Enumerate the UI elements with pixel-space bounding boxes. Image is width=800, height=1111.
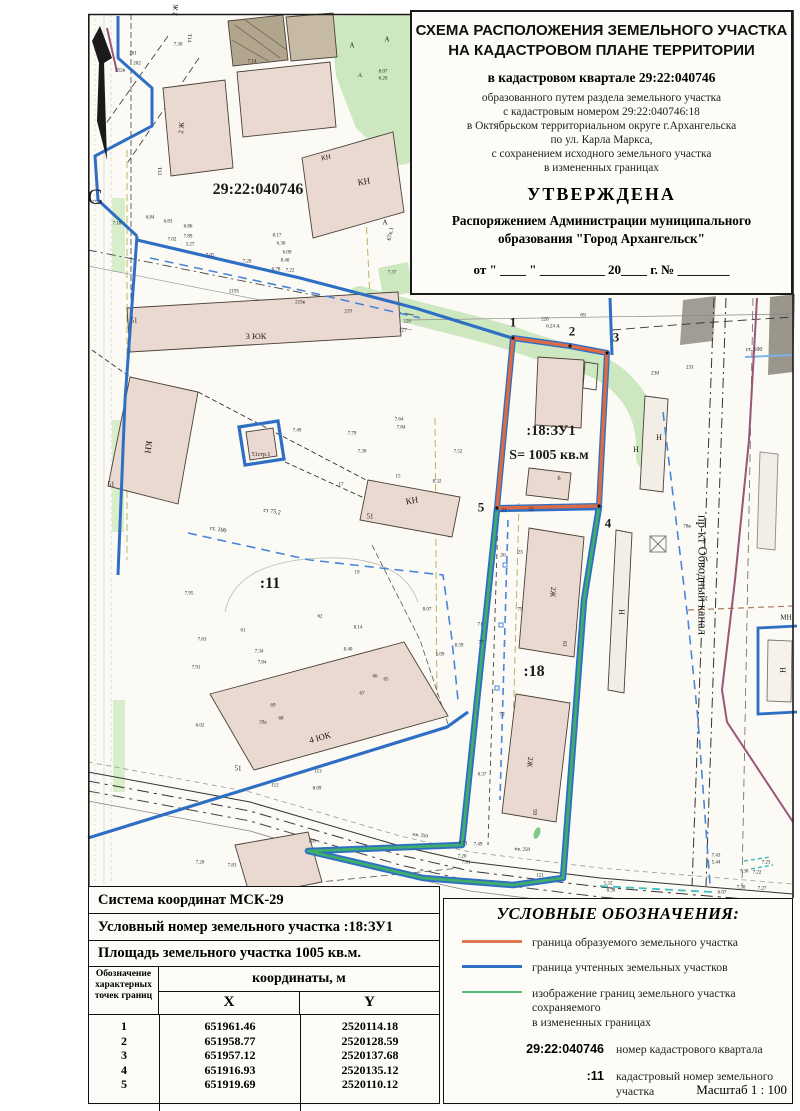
- point-number-cell: 4: [89, 1063, 159, 1078]
- coordinates-table-body: 12345 651961.46651958.77651957.12651916.…: [89, 1015, 439, 1111]
- approved-by: Распоряжением Администрации муниципально…: [412, 212, 791, 246]
- coordinates-table-header: Обозначение характерных точек границ коо…: [89, 967, 439, 1015]
- y-column-header: Y: [300, 992, 439, 1014]
- legend-item-label-line2: в измененных границах: [532, 1015, 786, 1029]
- y-coordinate-cell: 2520128.59: [301, 1034, 439, 1049]
- legend-item-label-line1: изображение границ земельного участка со…: [532, 986, 786, 1015]
- point-number-cell: 5: [89, 1077, 159, 1092]
- legend: УСЛОВНЫЕ ОБОЗНАЧЕНИЯ: граница образуемог…: [443, 898, 793, 1104]
- x-coordinate-cell: 651957.12: [160, 1048, 300, 1063]
- approved-by-line1: Распоряжением Администрации муниципально…: [412, 212, 791, 229]
- y-coordinate-cell: 2520137.68: [301, 1048, 439, 1063]
- y-coordinate-cell: 2520135.12: [301, 1063, 439, 1078]
- approved-by-line2: образования "Город Архангельск": [412, 230, 791, 247]
- scanned-document-page: С29:22:040746:18:ЗУ1S= 1005 кв.м:11:1812…: [0, 0, 800, 1111]
- description-line: с сохранением исходного земельного участ…: [412, 147, 791, 161]
- legend-item-formed-boundary: граница образуемого земельного участка: [456, 935, 786, 949]
- x-coordinate-cell: 651919.69: [160, 1077, 300, 1092]
- crs-line: Система координат МСК-29: [89, 887, 439, 914]
- legend-item-label: граница учтенных земельных участков: [528, 960, 728, 974]
- point-number-cell: 3: [89, 1048, 159, 1063]
- point-column-header: Обозначение характерных точек границ: [89, 967, 159, 1014]
- point-number-cell: 2: [89, 1034, 159, 1049]
- coordinates-block: Система координат МСК-29 Условный номер …: [88, 886, 440, 1104]
- x-coordinates-column: 651961.46651958.77651957.12651916.936519…: [160, 1015, 301, 1111]
- y-coordinate-cell: 2520114.18: [301, 1019, 439, 1034]
- coords-header-group: координаты, м X Y: [159, 967, 439, 1014]
- document-title-line2: НА КАДАСТРОВОМ ПЛАНЕ ТЕРРИТОРИИ: [412, 41, 791, 61]
- building-51str1: [246, 428, 277, 460]
- scale-label: Масштаб 1 : 100: [696, 1082, 789, 1098]
- y-coordinates-column: 2520114.182520128.592520137.682520135.12…: [301, 1015, 439, 1111]
- quarter-number-symbol: 29:22:040746: [456, 1042, 612, 1056]
- legend-item-registered-boundary: граница учтенных земельных участков: [456, 960, 786, 974]
- approved-heading: УТВЕРЖДЕНА: [412, 184, 791, 205]
- preserved-boundary-swatch: [462, 991, 522, 994]
- legend-item-preserved-boundary: изображение границ земельного участка со…: [456, 986, 786, 1029]
- conditional-number-line: Условный номер земельного участка :18:ЗУ…: [89, 914, 439, 941]
- formed-boundary-swatch: [462, 940, 522, 943]
- document-title: СХЕМА РАСПОЛОЖЕНИЯ ЗЕМЕЛЬНОГО УЧАСТКА НА…: [412, 21, 791, 61]
- legend-item-quarter-number: 29:22:040746 номер кадастрового квартала: [456, 1042, 786, 1056]
- registered-boundary-swatch: [462, 965, 522, 968]
- description-line: с кадастровым номером 29:22:040746:18: [412, 105, 791, 119]
- swatch-wrap: [456, 986, 528, 994]
- approval-date-line: от " ____ " __________ 20____ г. № _____…: [412, 262, 791, 278]
- y-coordinate-cell: 2520110.12: [301, 1077, 439, 1092]
- description-line: в Октябрьском территориальном округе г.А…: [412, 119, 791, 133]
- x-coordinate-cell: 651916.93: [160, 1063, 300, 1078]
- coords-column-header: координаты, м: [159, 967, 439, 992]
- swatch-wrap: [456, 935, 528, 943]
- x-coordinate-cell: 651961.46: [160, 1019, 300, 1034]
- description-line: по ул. Карла Маркса,: [412, 133, 791, 147]
- description-line: образованного путем раздела земельного у…: [412, 91, 791, 105]
- legend-item-label: номер кадастрового квартала: [612, 1042, 763, 1056]
- description-line: в измененных границах: [412, 161, 791, 175]
- swatch-wrap: [456, 960, 528, 968]
- cadastral-quarter-line: в кадастровом квартале 29:22:040746: [412, 70, 791, 86]
- document-title-line1: СХЕМА РАСПОЛОЖЕНИЯ ЗЕМЕЛЬНОГО УЧАСТКА: [412, 21, 791, 41]
- point-number-column: 12345: [89, 1015, 160, 1111]
- xy-header-row: X Y: [159, 992, 439, 1014]
- point-number-cell: 1: [89, 1019, 159, 1034]
- cadastral-number-symbol: :11: [456, 1069, 612, 1083]
- title-block: СХЕМА РАСПОЛОЖЕНИЯ ЗЕМЕЛЬНОГО УЧАСТКА НА…: [410, 10, 793, 295]
- legend-item-label: граница образуемого земельного участка: [528, 935, 738, 949]
- legend-item-label: изображение границ земельного участка со…: [528, 986, 786, 1029]
- legend-title: УСЛОВНЫЕ ОБОЗНАЧЕНИЯ:: [444, 904, 792, 924]
- x-coordinate-cell: 651958.77: [160, 1034, 300, 1049]
- x-column-header: X: [159, 992, 300, 1014]
- description-lines: образованного путем раздела земельного у…: [412, 91, 791, 176]
- area-line: Площадь земельного участка 1005 кв.м.: [89, 941, 439, 967]
